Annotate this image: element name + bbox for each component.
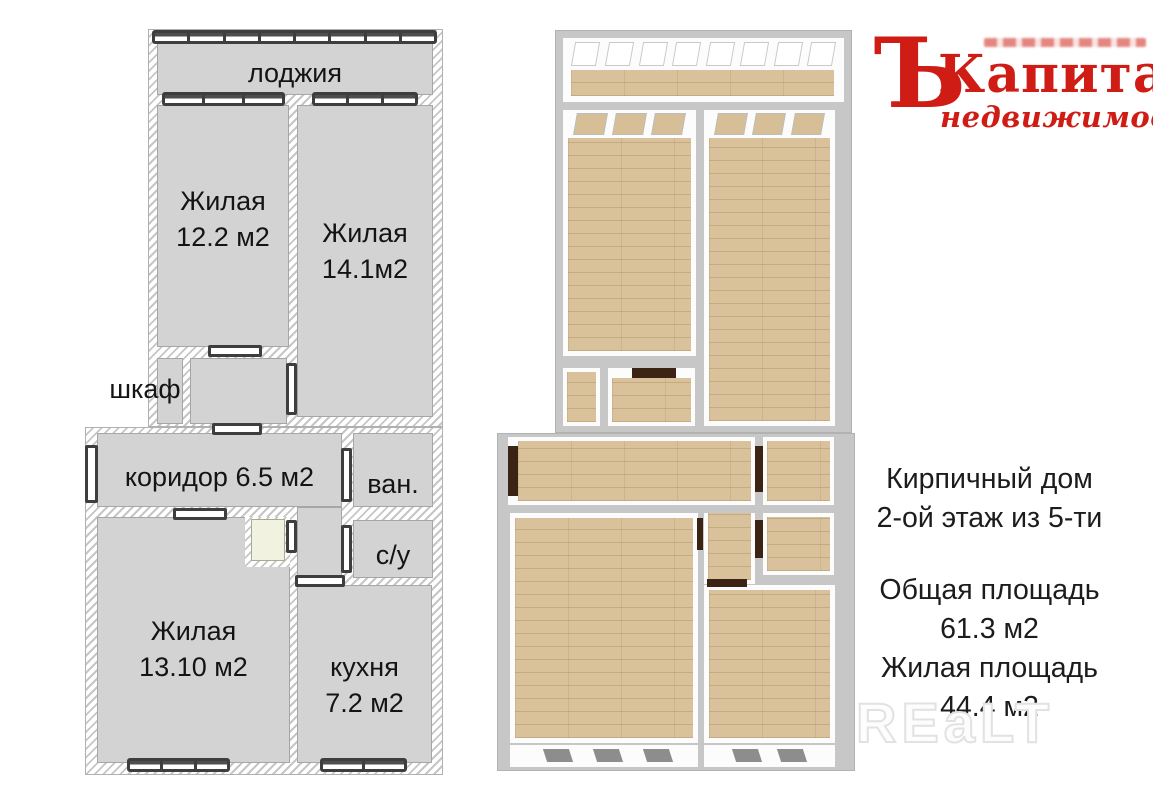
room-name: Жилая: [97, 613, 290, 649]
window-row-loggia-3d: [573, 42, 834, 66]
room-label-living: Жилая 13.10 м2: [97, 613, 290, 685]
door-pantry-3d: [697, 518, 703, 550]
room-area: 7.2 м2: [297, 685, 432, 721]
floor-closet-3d: [567, 372, 596, 422]
window-band-living-3d: [510, 745, 698, 767]
window-mark: [543, 749, 573, 762]
door-hall-3d: [632, 368, 676, 378]
door-bedroom2: [286, 363, 297, 415]
room-bedroom1-3d: [563, 110, 696, 356]
door-kitchen: [295, 575, 345, 587]
room-living-3d: [510, 513, 698, 743]
room-wc-3d: [763, 513, 834, 575]
room-kitchen-3d: [704, 585, 835, 743]
window-band-kitchen-3d: [704, 745, 835, 767]
floor-living-3d: [515, 518, 693, 738]
door-living: [173, 508, 227, 520]
info-line-total-label: Общая площадь: [872, 571, 1107, 610]
logo-subtitle: недвижимости: [940, 100, 1153, 134]
floor-wc-3d: [767, 517, 830, 571]
door-bathroom-3d: [755, 446, 763, 492]
floorplan-2d: лоджия Жилая 12.2 м2 Жилая 14.1м2 шкаф к…: [85, 29, 443, 775]
room-bedroom2-3d: [704, 110, 835, 426]
floor-bedroom2-3d: [709, 138, 830, 421]
room-label-bedroom1: Жилая 12.2 м2: [157, 183, 289, 255]
door-pantry: [286, 520, 297, 553]
room-passage-3d: [704, 513, 755, 584]
room-label-wc: с/у: [353, 537, 433, 573]
window-loggia: [152, 30, 437, 44]
door-bathroom: [341, 448, 352, 502]
pantry-square: [251, 519, 285, 561]
door-wc: [341, 525, 352, 573]
room-label-bedroom2: Жилая 14.1м2: [297, 215, 433, 287]
window-bedroom1: [162, 92, 285, 106]
realt-watermark: REaLT: [856, 690, 1054, 755]
room-label-closet: шкаф: [103, 371, 187, 407]
window-mark: [643, 749, 673, 762]
window-mark: [777, 749, 807, 762]
door-bedroom1: [208, 345, 262, 357]
room-label-corridor: коридор 6.5 м2: [97, 459, 342, 495]
window-row-bedroom2-3d: [716, 113, 823, 135]
info-gap: [872, 538, 1107, 571]
floor-corridor-3d: [518, 441, 751, 501]
floor-passage-3d: [708, 513, 751, 580]
info-line-floor: 2-ой этаж из 5-ти: [872, 499, 1107, 538]
room-passage: [297, 507, 342, 585]
room-label-bathroom: ван.: [353, 466, 433, 502]
room-area: 12.2 м2: [157, 219, 289, 255]
room-corridor-3d: [508, 437, 755, 505]
room-name: Жилая: [157, 183, 289, 219]
window-living: [127, 758, 230, 772]
room-hall-3d: [608, 368, 695, 426]
window-mark: [732, 749, 762, 762]
listing-info: Кирпичный дом 2-ой этаж из 5-ти Общая пл…: [872, 460, 1107, 727]
floorplan-3d: [497, 30, 855, 771]
room-name: кухня: [297, 649, 432, 685]
room-name: Жилая: [297, 215, 433, 251]
floor-hall-3d: [612, 378, 691, 422]
room-loggia-3d: [563, 38, 844, 102]
room-hall: [190, 358, 287, 424]
window-bedroom2: [312, 92, 418, 106]
room-label-kitchen: кухня 7.2 м2: [297, 649, 432, 721]
floor-kitchen-3d: [709, 590, 830, 738]
room-area: 14.1м2: [297, 251, 433, 287]
room-closet-3d: [563, 368, 600, 426]
window-kitchen: [320, 758, 407, 772]
listing-image: лоджия Жилая 12.2 м2 Жилая 14.1м2 шкаф к…: [0, 0, 1153, 800]
logo-title: Капитал: [938, 44, 1153, 105]
info-line-building: Кирпичный дом: [872, 460, 1107, 499]
floor-loggia-3d: [571, 70, 834, 96]
room-area: 13.10 м2: [97, 649, 290, 685]
room-label-loggia: лоджия: [157, 55, 433, 91]
door-wc-3d: [755, 520, 763, 558]
room-bathroom-3d: [763, 437, 834, 505]
info-line-total-value: 61.3 м2: [872, 610, 1107, 649]
agency-logo: Ъ Капитал недвижимости: [868, 32, 1153, 142]
floor-bedroom1-3d: [568, 138, 691, 351]
door-entrance-3d: [508, 446, 518, 496]
window-mark: [593, 749, 623, 762]
floor-bathroom-3d: [767, 441, 830, 501]
door-hall-corridor: [212, 423, 262, 435]
info-line-living-label: Жилая площадь: [872, 649, 1107, 688]
window-row-bedroom1-3d: [575, 113, 684, 135]
door-kitchen-3d: [707, 579, 747, 587]
